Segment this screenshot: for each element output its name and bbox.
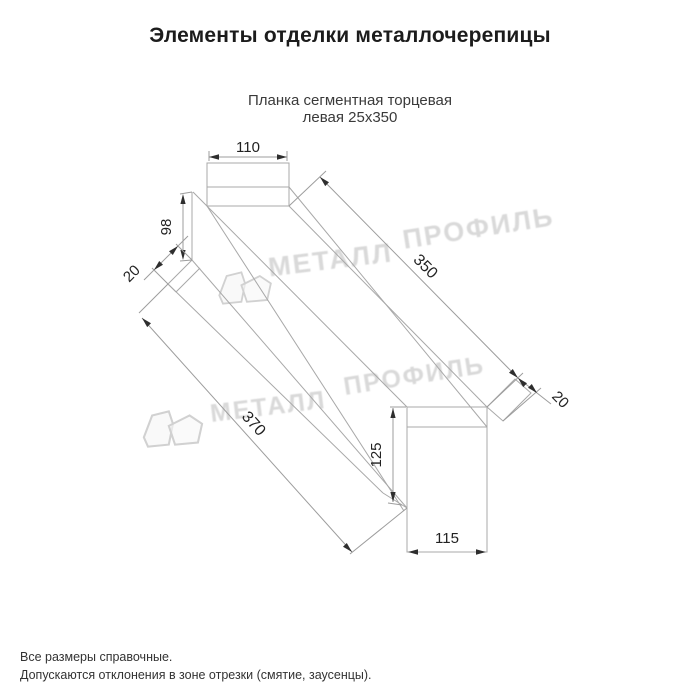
footer-note-line2: Допускаются отклонения в зоне отрезки (с…	[20, 666, 372, 684]
dim-20-right-label: 20	[548, 388, 572, 412]
dim-20-left-label: 20	[120, 262, 144, 286]
document-page: Элементы отделки металлочерепицы Планка …	[0, 0, 700, 700]
dim-350-label: 350	[410, 251, 441, 282]
footer-note-line1: Все размеры справочные.	[20, 648, 372, 666]
technical-drawing: 110 98 20 350 20	[0, 0, 700, 700]
dim-right-hem: 20	[487, 373, 572, 421]
dim-right-height: 125	[368, 407, 406, 505]
strip-body-edges	[168, 187, 487, 511]
dim-bottom-width: 115	[408, 530, 486, 555]
dim-125-label: 125	[368, 442, 385, 467]
dim-length-overall: 370	[139, 284, 407, 554]
dim-110-label: 110	[236, 139, 260, 156]
dim-370-label: 370	[238, 408, 269, 439]
dim-length-top: 350	[289, 171, 518, 378]
footer-notes: Все размеры справочные. Допускаются откл…	[20, 648, 372, 684]
dim-98-label: 98	[158, 219, 175, 236]
dim-top-width: 110	[209, 139, 287, 161]
dim-115-label: 115	[435, 530, 459, 547]
